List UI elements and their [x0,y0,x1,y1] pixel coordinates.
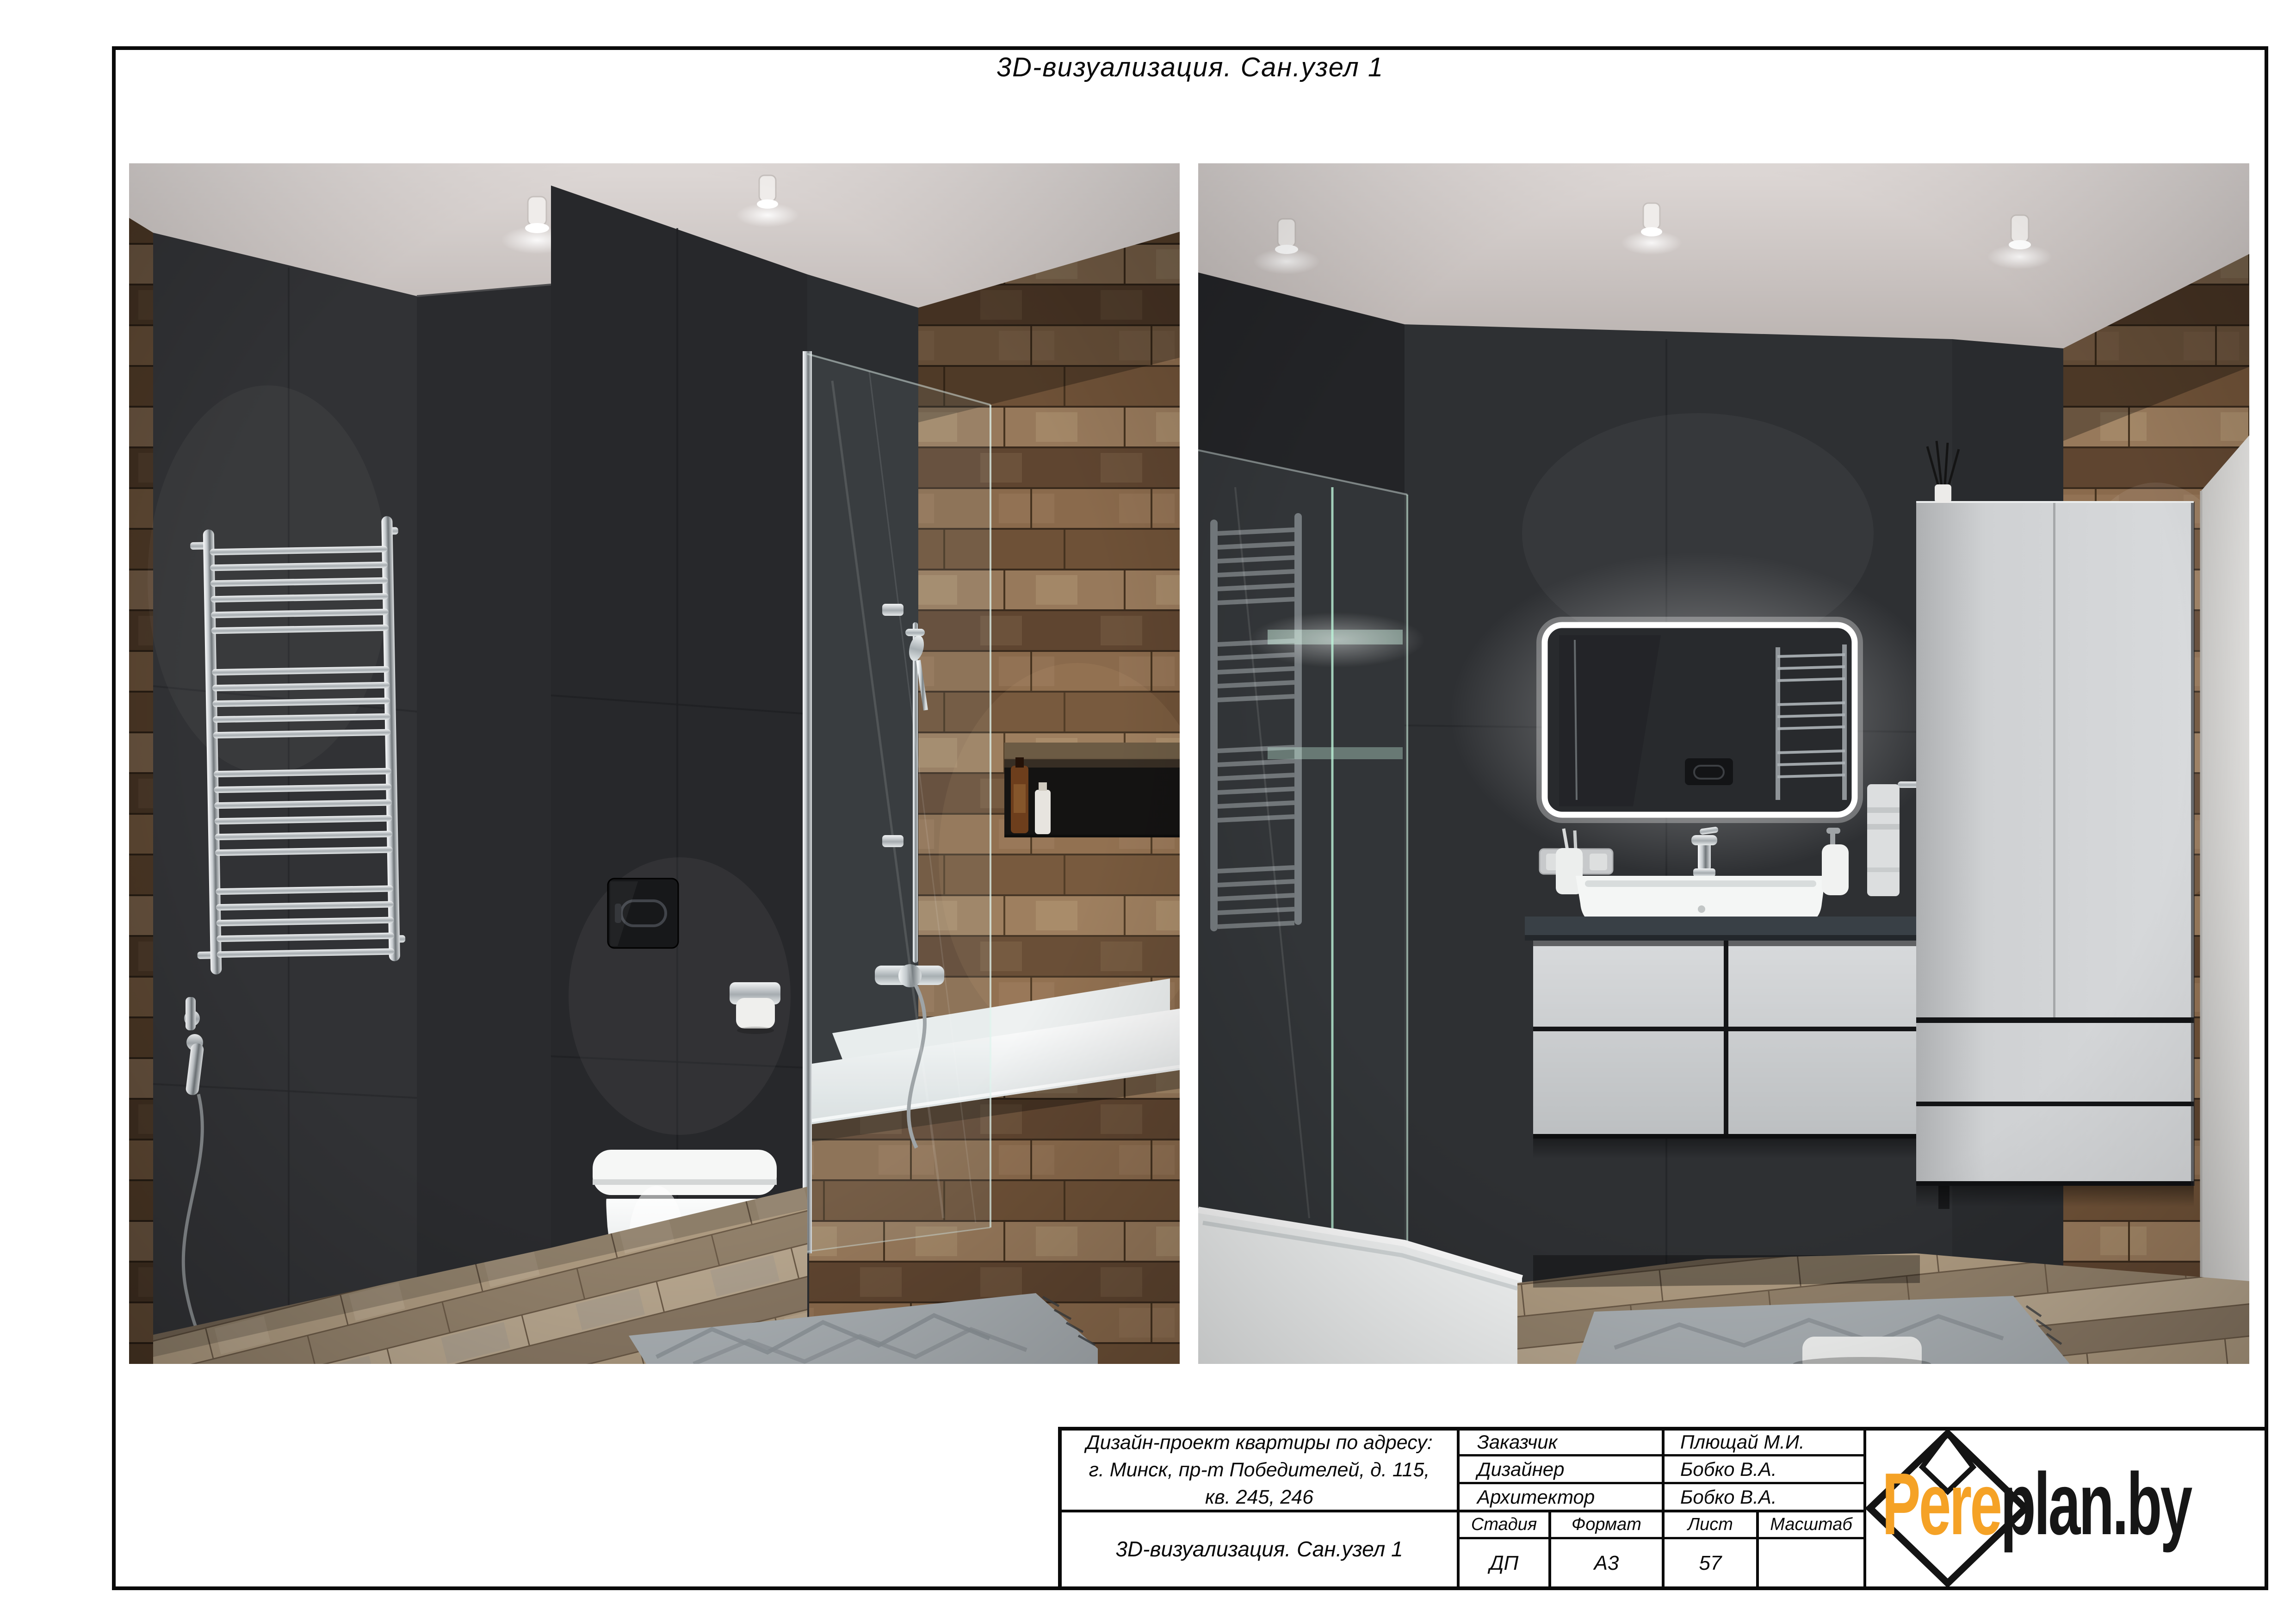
project-address-line: кв. 245, 246 [1205,1484,1313,1511]
meta-header-format: Формат [1551,1512,1662,1537]
person-name: Бобко В.А. [1673,1485,1871,1510]
drawing-sheet: 3D-визуализация. Сан.узел 1 [0,0,2296,1623]
meta-value-scale [1759,1540,1863,1586]
drawing-title: 3D-визуализация. Сан.узел 1 [1062,1512,1457,1586]
meta-value-list: 57 [1665,1540,1756,1586]
company-logo: Pereplan.by [1866,1431,2265,1586]
person-name: Плющай М.И. [1673,1431,1871,1454]
person-name: Бобко В.А. [1673,1457,1871,1482]
vignette [1198,163,2249,1364]
meta-header-stadia: Стадия [1460,1512,1548,1537]
divider [1457,1537,1866,1539]
title-block: Дизайн-проект квартиры по адресу: г. Мин… [1058,1427,2268,1590]
logo-text-orange: Pere [1882,1455,2000,1553]
vignette [129,163,1180,1364]
render-right-bathroom-view [1198,163,2249,1364]
render-left-bathroom-view [129,163,1180,1364]
meta-value-format: А3 [1551,1540,1662,1586]
project-address-line: г. Минск, пр-т Победителей, д. 115, [1089,1456,1430,1484]
role-label: Дизайнер [1468,1457,1671,1482]
render-left-scene [129,163,1180,1364]
role-label: Архитектор [1468,1485,1671,1510]
project-address: Дизайн-проект квартиры по адресу: г. Мин… [1062,1431,1457,1510]
role-label: Заказчик [1468,1431,1671,1454]
render-right-scene [1198,163,2249,1364]
project-address-line: Дизайн-проект квартиры по адресу: [1086,1429,1432,1456]
meta-value-stadia: ДП [1460,1540,1548,1586]
logo-text-black: plan.by [2000,1455,2191,1553]
meta-header-scale: Масштаб [1759,1512,1863,1537]
logo-wordmark: Pereplan.by [1882,1460,2191,1548]
divider [1457,1454,1866,1456]
page-title: 3D-визуализация. Сан.узел 1 [112,52,2268,83]
divider [1457,1482,1866,1484]
meta-header-list: Лист [1665,1512,1756,1537]
